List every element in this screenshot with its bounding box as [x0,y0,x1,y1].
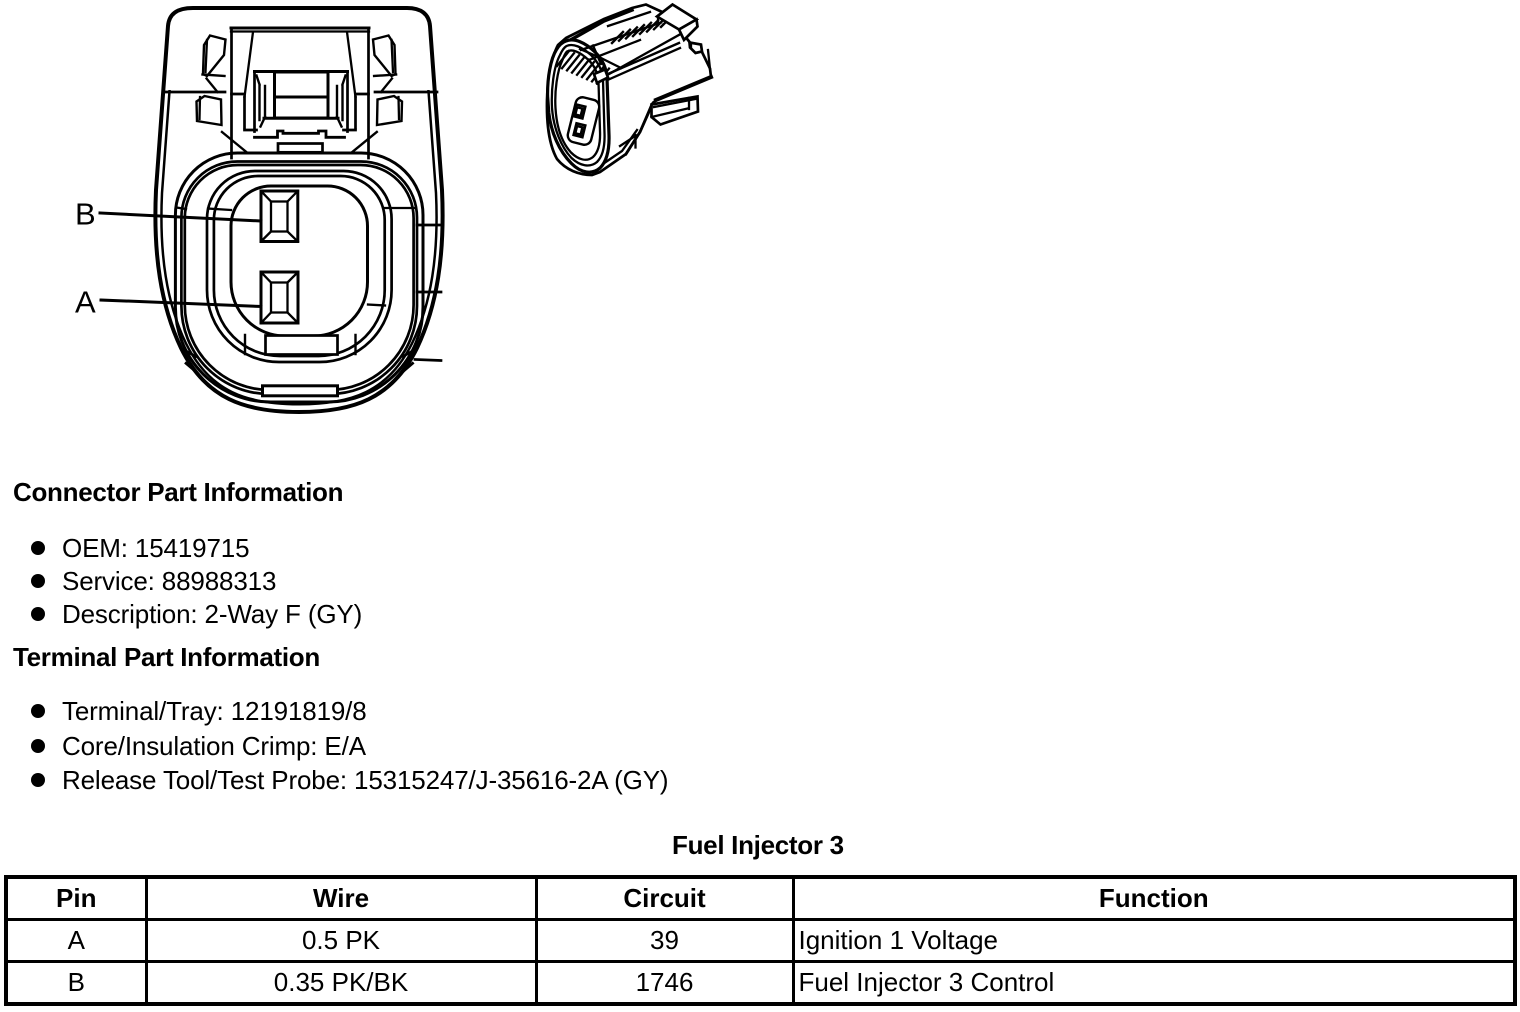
svg-text:A: A [75,285,96,320]
svg-text:B: B [75,197,96,232]
